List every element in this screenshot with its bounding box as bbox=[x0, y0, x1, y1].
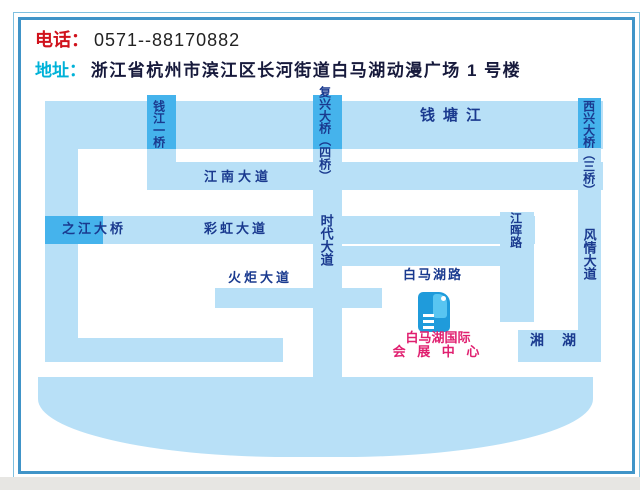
building-dot bbox=[441, 296, 446, 301]
exhibition-center-line1: 白马湖国际 bbox=[388, 331, 488, 344]
label-caihong-avenue: 彩虹大道 bbox=[204, 222, 268, 236]
label-fengqing-avenue: 风情大道 bbox=[582, 228, 596, 280]
bottom-edge-strip bbox=[0, 477, 640, 490]
label-baimahu-road: 白马湖路 bbox=[403, 268, 463, 282]
baima-lake-shape bbox=[38, 377, 593, 457]
road-bottom-left bbox=[45, 338, 283, 362]
exhibition-center-icon bbox=[418, 292, 450, 332]
building-window bbox=[423, 320, 434, 323]
road-huoju-avenue bbox=[215, 288, 382, 308]
label-xixing-bridge: 西兴大桥（三桥） bbox=[582, 100, 595, 196]
building-window bbox=[423, 314, 434, 317]
label-huoju-avenue: 火炬大道 bbox=[228, 271, 292, 285]
road-baimahu-road bbox=[342, 246, 502, 266]
map: 钱塘江 钱江一桥 复兴大桥（四桥） 西兴大桥（三桥） 江南大道 之江大桥 彩虹大… bbox=[0, 0, 640, 490]
exhibition-center-line2: 会 展 中 心 bbox=[388, 345, 488, 358]
building-window bbox=[423, 326, 434, 329]
label-qiantang-river: 钱塘江 bbox=[420, 108, 489, 124]
label-jiangnan-avenue: 江南大道 bbox=[204, 170, 272, 184]
label-fuxing-bridge: 复兴大桥（四桥） bbox=[318, 86, 331, 182]
label-exhibition-center: 白马湖国际 会 展 中 心 bbox=[388, 331, 488, 358]
label-shidai-avenue: 时代大道 bbox=[319, 214, 333, 266]
road-left-column bbox=[45, 149, 78, 362]
label-qianjiang-bridge: 钱江一桥 bbox=[152, 100, 165, 148]
label-zhijiang-bridge: 之江大桥 bbox=[62, 222, 126, 236]
label-jianghui-road: 江晖路 bbox=[509, 212, 522, 248]
label-xiang-lake: 湘湖 bbox=[530, 333, 594, 348]
